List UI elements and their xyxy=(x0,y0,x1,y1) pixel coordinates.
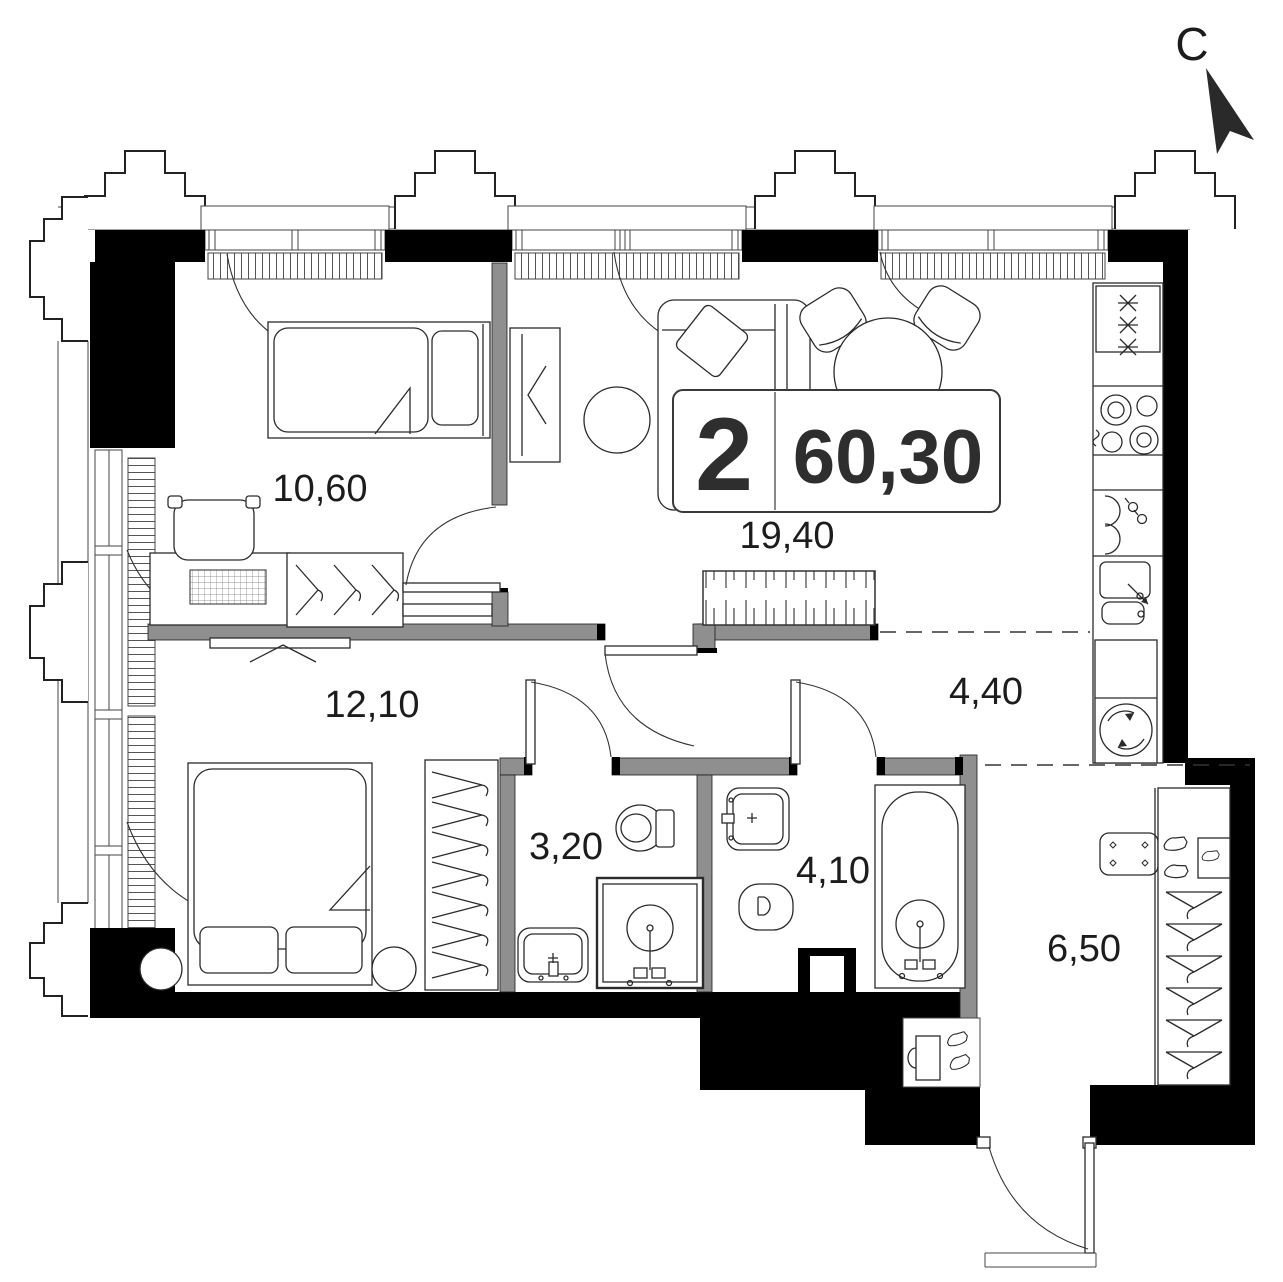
total-area-value: 60,30 xyxy=(793,415,983,500)
double-bed-icon xyxy=(188,763,372,985)
wardrobe-hangers-icon xyxy=(425,760,498,990)
north-label: С xyxy=(1175,18,1208,70)
sink-icon xyxy=(722,788,789,850)
north-arrow-icon: С xyxy=(1175,18,1254,154)
door-corridor xyxy=(605,646,697,746)
counter-cabinet-icon xyxy=(1100,562,1150,624)
area-label-bedroom-1: 10,60 xyxy=(272,468,367,510)
coat-rack-icon xyxy=(1155,788,1230,1085)
sliding-door-icon xyxy=(210,638,350,662)
single-bed-icon xyxy=(268,322,490,438)
door-bathroom-1 xyxy=(526,680,611,764)
area-label-corridor: 4,40 xyxy=(949,671,1023,713)
low-cabinet-icon xyxy=(403,604,492,616)
floor-plan-canvas: 10,60 19,40 12,10 4,40 3,20 4,10 6,50 2 … xyxy=(0,0,1283,1282)
chair-icon xyxy=(168,496,260,560)
window-kitchen xyxy=(874,206,1112,279)
shoe-cabinet-room xyxy=(903,1018,980,1087)
area-label-bathroom-2: 4,10 xyxy=(796,850,870,892)
window-bay-left xyxy=(95,450,155,985)
window-bedroom-1 xyxy=(201,206,389,279)
furniture-bedroom-2 xyxy=(140,638,498,991)
radiator-icon xyxy=(703,571,875,625)
open-boundary-dashed xyxy=(880,632,1250,765)
area-label-living-room: 19,40 xyxy=(739,515,834,557)
kitchen-units xyxy=(1093,283,1163,763)
area-label-entrance-hall: 6,50 xyxy=(1047,928,1121,970)
area-label-bathroom-1: 3,20 xyxy=(529,826,603,868)
stool-icon xyxy=(1100,833,1158,875)
room-count-value: 2 xyxy=(695,397,753,513)
wardrobe-icon xyxy=(287,553,403,627)
desk-icon xyxy=(150,553,290,625)
ventilation-shaft xyxy=(798,948,856,1000)
floor-plan-page: 10,60 19,40 12,10 4,40 3,20 4,10 6,50 2 … xyxy=(0,0,1283,1282)
fridge-icon xyxy=(1096,286,1160,355)
area-label-bedroom-2: 12,10 xyxy=(324,684,419,726)
nightstand-icon xyxy=(140,948,182,990)
shower-icon xyxy=(597,878,703,988)
door-bathroom-2 xyxy=(791,680,876,764)
cabinet-icon xyxy=(510,328,560,462)
entrance-door xyxy=(977,1137,1096,1267)
apartment-info-box: 2 60,30 xyxy=(673,390,1000,513)
nightstand-icon xyxy=(372,947,416,991)
toilet-icon xyxy=(616,805,674,851)
toilet-icon xyxy=(739,884,793,930)
window-living xyxy=(508,206,746,279)
sink-icon xyxy=(518,928,588,982)
door-bedroom-1 xyxy=(403,507,500,592)
coffee-table-icon xyxy=(584,387,650,453)
bathtub-icon xyxy=(875,785,965,988)
